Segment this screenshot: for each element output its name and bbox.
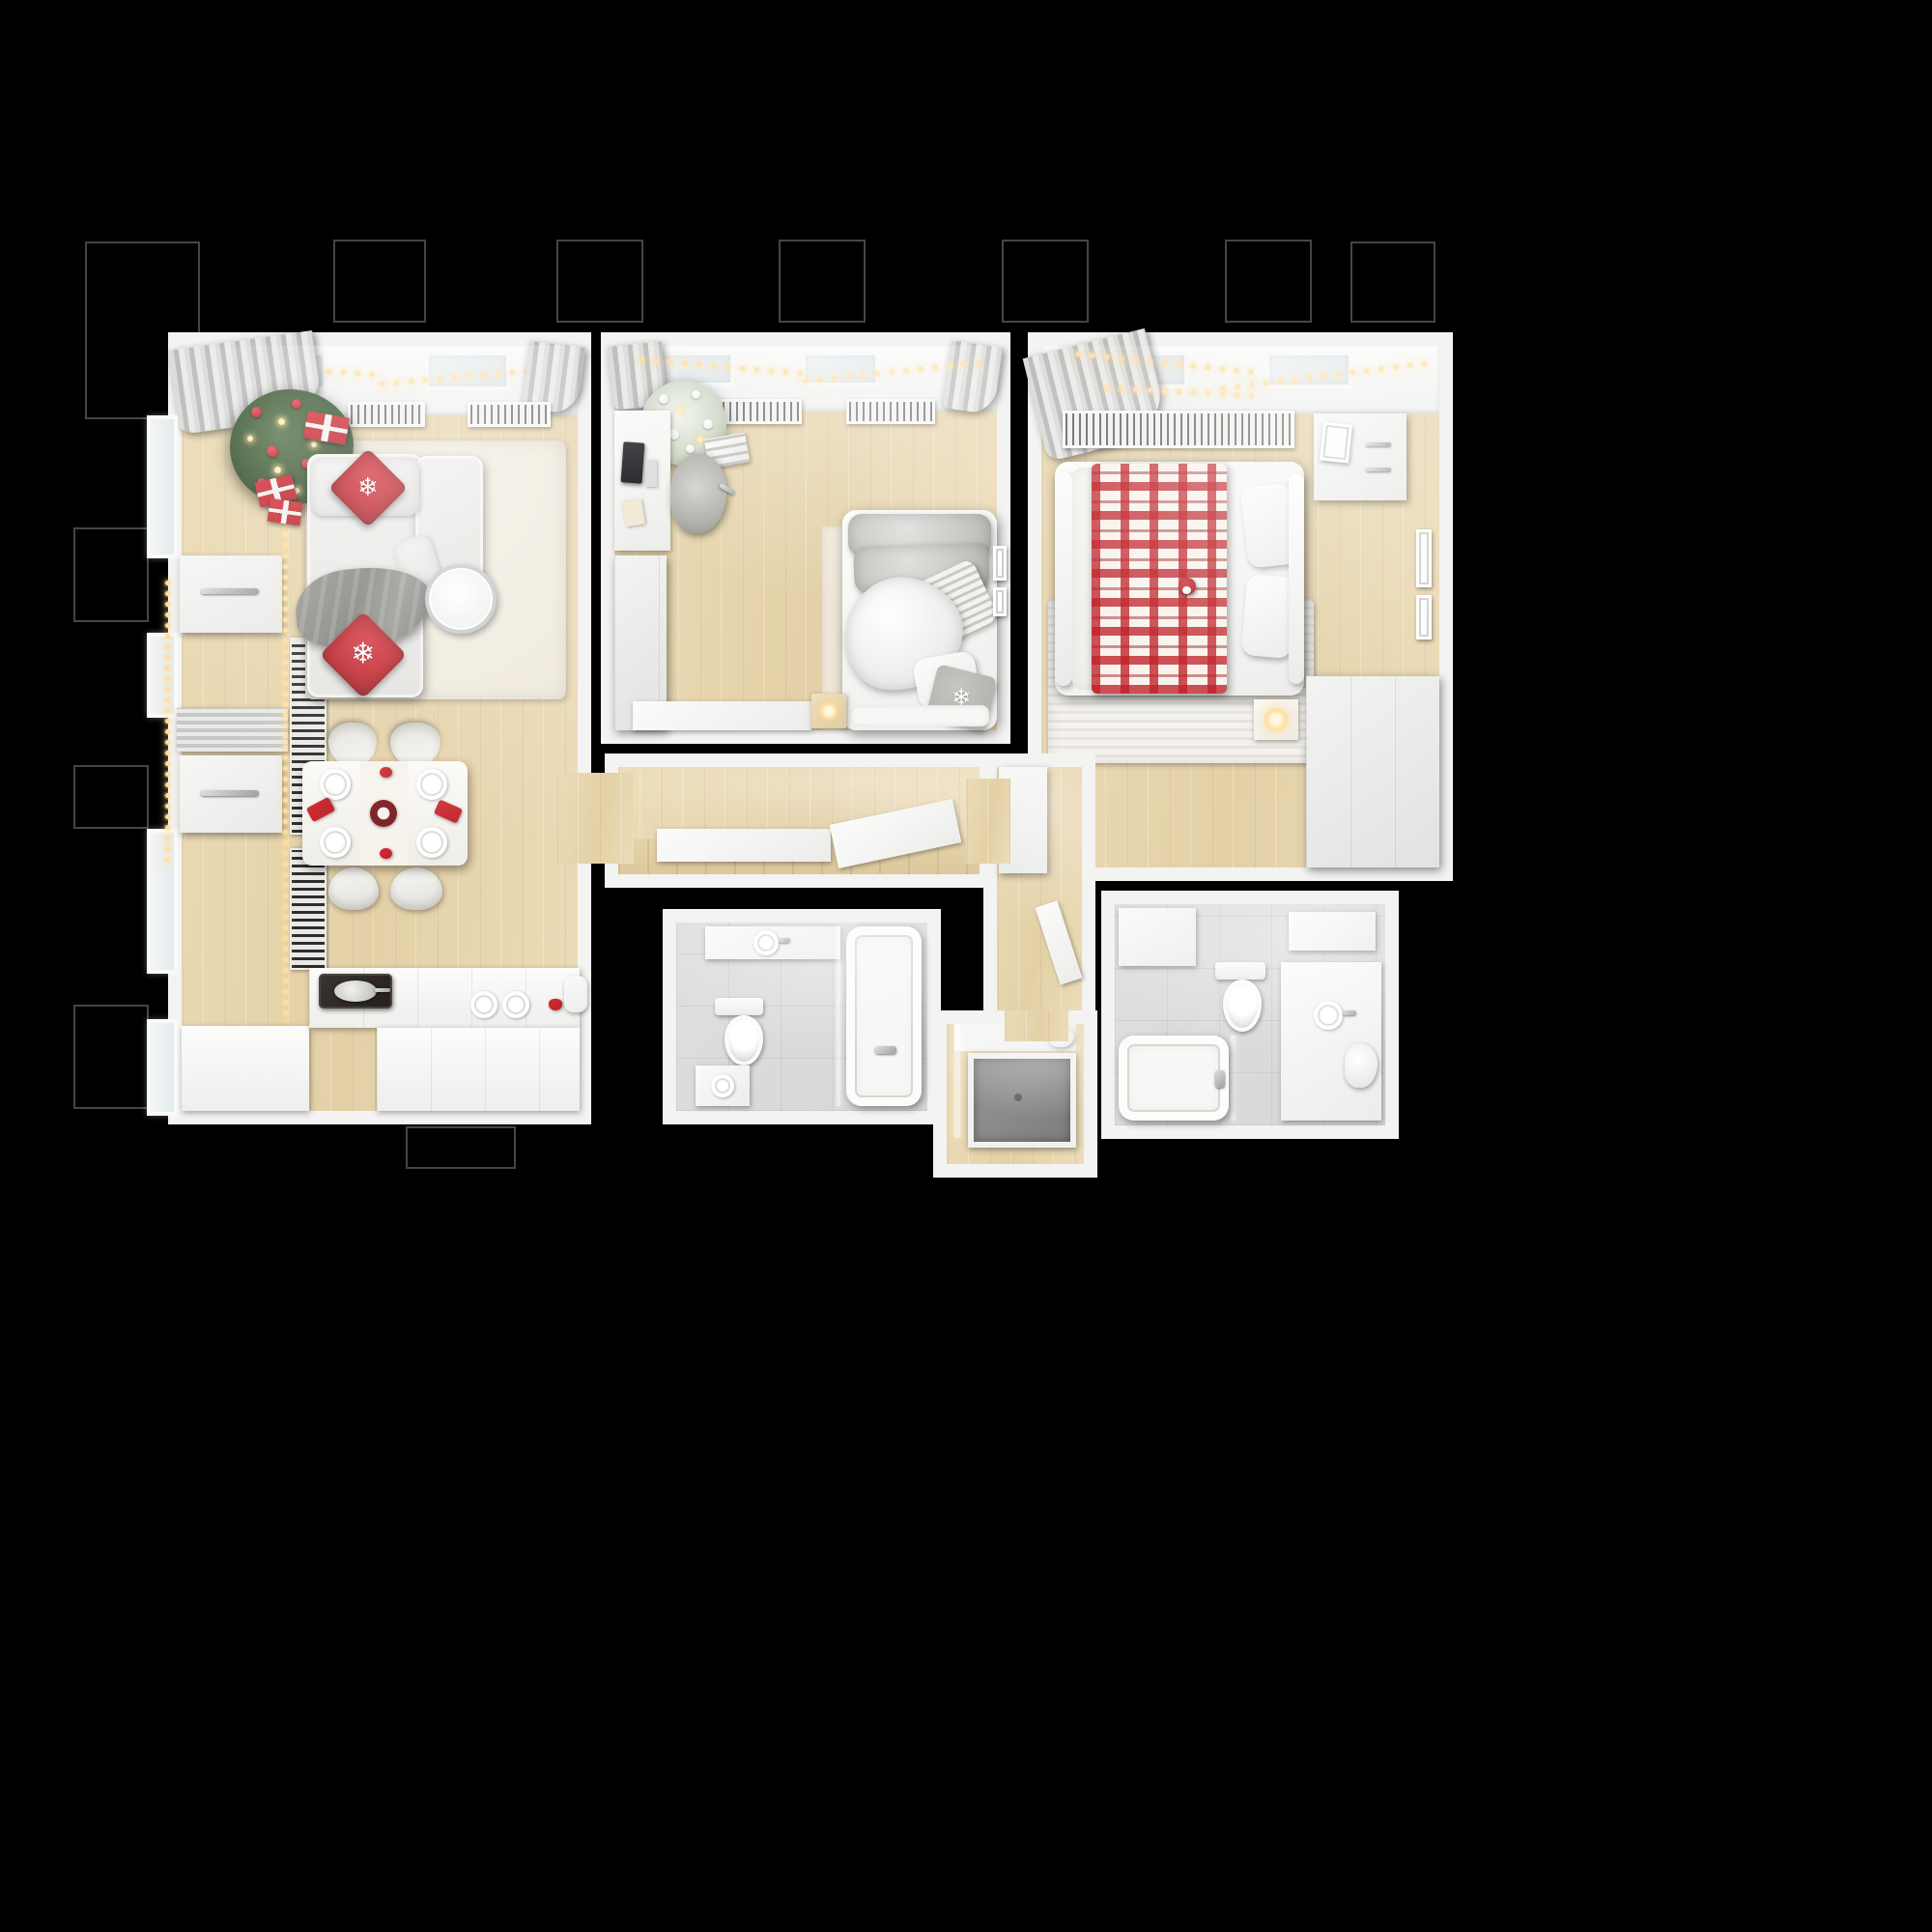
wardrobe: [1306, 676, 1439, 867]
exterior-ledge: [779, 240, 866, 323]
glass-screen: [837, 926, 840, 1106]
toilet-tank: [1215, 962, 1265, 980]
wall-frame: [993, 546, 1007, 581]
kettle: [564, 976, 587, 1012]
window: [147, 1019, 178, 1116]
plate: [416, 769, 447, 800]
radiator-grille: [1063, 411, 1294, 448]
keyboard: [645, 460, 657, 487]
shelf: [1289, 912, 1376, 951]
faucet: [779, 938, 790, 943]
storage-cabinet: [1119, 908, 1196, 966]
headboard: [1289, 473, 1304, 684]
exterior-ledge: [1225, 240, 1312, 323]
towel: [1345, 1043, 1378, 1088]
dining-table: [302, 761, 468, 866]
vertical-radiator: [290, 848, 327, 970]
glass-screen: [1231, 1036, 1236, 1121]
induction-cooktop: [319, 974, 392, 1009]
bathtub: [1119, 1036, 1229, 1121]
toilet-bowl: [724, 1015, 763, 1065]
footboard: [1055, 471, 1072, 686]
room-kids: ❄: [614, 346, 997, 730]
shower-tray: [968, 1053, 1076, 1148]
red-cup: [380, 848, 392, 859]
door-leaf: [1036, 900, 1083, 984]
snowflake-icon: ❄: [357, 475, 379, 500]
tree-light: [247, 436, 253, 441]
exterior-ledge: [73, 765, 149, 829]
wall-cabinet-panel: [180, 555, 282, 633]
nightstand: [1254, 699, 1298, 740]
kitchen-cabinets: [182, 1026, 309, 1111]
doorway-hallway-corridor: [966, 779, 1010, 864]
washer-door: [711, 1074, 734, 1097]
exterior-ledge: [73, 1005, 149, 1109]
dining-chair: [328, 867, 379, 910]
room-shower: [947, 1024, 1084, 1164]
sink-basin: [502, 991, 529, 1018]
kitchen-island: [377, 1028, 580, 1111]
tree-bauble: [267, 445, 278, 457]
tub-mixer: [1215, 1070, 1225, 1088]
room-hallway: [618, 767, 980, 874]
white-bauble: [686, 444, 695, 453]
lamp-glow: [1264, 707, 1289, 732]
white-bauble: [659, 394, 668, 404]
red-napkin: [306, 797, 335, 822]
tree-light: [697, 437, 703, 442]
white-bauble: [703, 419, 713, 429]
roller-blinds: [177, 708, 288, 752]
sink-basin: [1314, 1001, 1343, 1030]
tree-bauble: [251, 407, 262, 417]
centerpiece-wreath: [370, 800, 397, 827]
doorway-corridor-shower: [1005, 1010, 1068, 1041]
plate: [320, 769, 351, 800]
room-master: [1041, 346, 1439, 867]
exterior-ledge: [73, 527, 149, 622]
wall-frame: [1416, 529, 1432, 587]
sink-basin: [753, 930, 779, 955]
dresser-handle: [1366, 468, 1391, 471]
exterior-ledge: [406, 1126, 516, 1169]
sink-basin: [470, 991, 497, 1018]
pan: [334, 980, 377, 1002]
tree-bauble: [292, 399, 301, 409]
red-cup: [380, 767, 392, 778]
doorway-living-hallway: [556, 773, 634, 864]
dresser: [1314, 413, 1406, 500]
bathtub: [846, 926, 922, 1106]
drain: [1014, 1094, 1022, 1101]
glass-screen: [954, 1024, 960, 1138]
window: [147, 415, 178, 558]
exterior-ledge: [1002, 240, 1089, 323]
double-bed: [1055, 462, 1304, 696]
photo-frame: [1320, 422, 1352, 464]
wall-light-bar: [201, 790, 259, 796]
dining-chair: [390, 867, 442, 910]
pan-handle: [375, 988, 390, 992]
string-lights: [160, 578, 172, 867]
radiator-grille: [846, 399, 935, 424]
wall-frame: [1416, 595, 1432, 639]
console-shelf: [657, 829, 831, 862]
plate: [416, 827, 447, 858]
floor-plan: ❄ ❄: [0, 0, 1932, 1932]
room-living: ❄ ❄: [182, 346, 578, 1111]
red-decor: [549, 999, 562, 1010]
exterior-ledge: [1350, 241, 1435, 323]
tree-light: [274, 467, 281, 473]
low-cabinet: [633, 701, 811, 730]
gift-box: [267, 498, 302, 526]
santa-gnome: [1179, 578, 1196, 595]
gnome-beard: [1182, 586, 1191, 594]
single-bed: ❄: [842, 510, 997, 730]
room-bath1: [676, 923, 927, 1111]
plaid-blanket: [1092, 464, 1227, 694]
side-table: [425, 564, 497, 634]
exterior-ledge: [333, 240, 426, 323]
paper-sheet: [622, 499, 645, 527]
radiator-grille: [468, 402, 551, 427]
red-napkin: [434, 799, 463, 823]
wall-light-bar: [201, 588, 259, 594]
room-bath2: [1115, 904, 1385, 1125]
radiator-grille: [348, 402, 425, 427]
faucet: [1343, 1010, 1356, 1015]
wall-cabinet-panel: [180, 755, 282, 833]
tree-light: [678, 408, 684, 413]
monitor: [621, 441, 645, 483]
snowflake-icon: ❄: [351, 640, 375, 669]
toilet-tank: [715, 998, 763, 1015]
vanity-cabinet: [1281, 962, 1381, 1121]
tree-light: [278, 418, 285, 425]
toilet-bowl: [1223, 980, 1262, 1032]
bedside-lamp: [811, 694, 846, 728]
tree-light: [311, 441, 317, 447]
mattress-edge: [850, 705, 989, 726]
white-bauble: [692, 390, 700, 399]
desk-chair: [670, 454, 726, 533]
lamp-glow: [819, 701, 838, 721]
exterior-ledge: [556, 240, 643, 323]
wall-frame: [993, 587, 1007, 616]
washer: [696, 1065, 750, 1106]
tub-mixer: [875, 1046, 896, 1054]
dresser-handle: [1366, 442, 1391, 446]
plate: [320, 827, 351, 858]
